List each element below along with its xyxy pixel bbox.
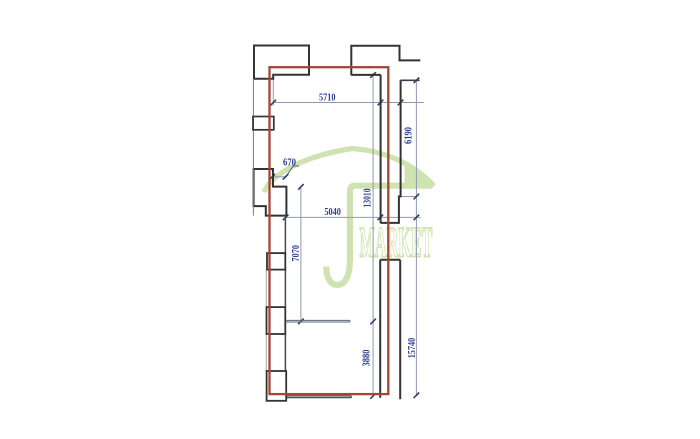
svg-text:7070: 7070 <box>290 245 302 262</box>
svg-text:6190: 6190 <box>403 127 415 144</box>
svg-text:670: 670 <box>283 157 296 169</box>
svg-text:5710: 5710 <box>319 92 336 104</box>
svg-text:13010: 13010 <box>361 188 373 207</box>
svg-text:15740: 15740 <box>406 337 418 358</box>
svg-text:3880: 3880 <box>361 349 373 366</box>
svg-text:5040: 5040 <box>324 206 341 218</box>
